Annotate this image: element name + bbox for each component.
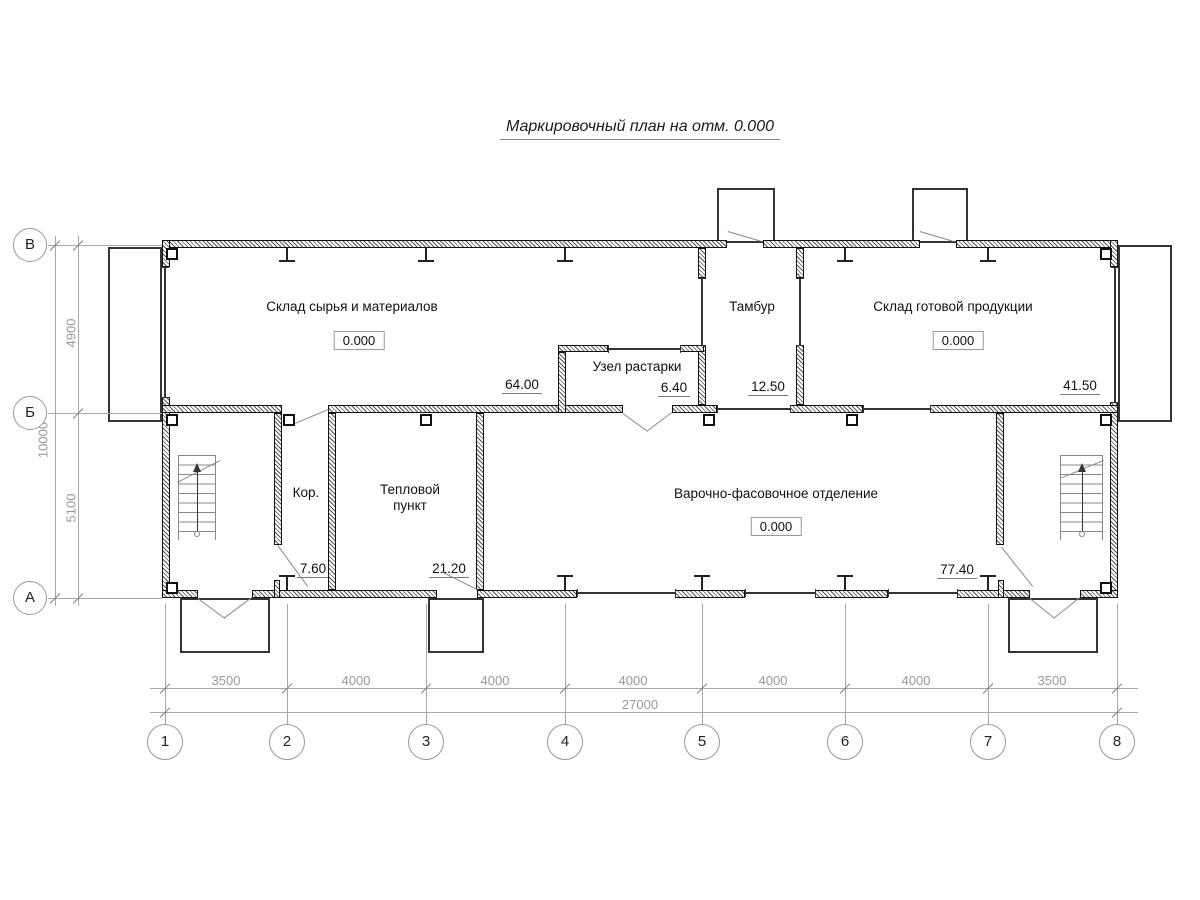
axis-circle-column: 6 <box>827 724 863 760</box>
stairs-start-marker <box>1079 531 1085 537</box>
elevation-badge-finished-goods: 0.000 <box>933 331 984 350</box>
window-tick <box>577 589 578 597</box>
wall-segment <box>274 580 280 598</box>
porch-bottom-2 <box>428 598 484 653</box>
room-label-raw-materials: Склад сырья и материалов <box>266 299 437 314</box>
window-tick <box>698 278 706 279</box>
axis-circle-column: 4 <box>547 724 583 760</box>
door-leaf-line <box>295 409 328 424</box>
wall-segment <box>162 240 727 248</box>
column-symbol <box>166 582 178 594</box>
column-symbol <box>987 577 989 590</box>
elevation-badge-raw-materials: 0.000 <box>334 331 385 350</box>
wall-segment <box>477 590 577 598</box>
dimension-label-span-1: 3500 <box>212 673 241 688</box>
axis-circle-column: 8 <box>1099 724 1135 760</box>
column-symbol <box>980 260 996 262</box>
column-symbol <box>1100 414 1112 426</box>
room-label-unpacking: Узел растарки <box>593 359 682 374</box>
area-label-unpacking: 6.40 <box>658 380 690 397</box>
column-symbol <box>701 577 703 590</box>
window-line <box>799 278 801 345</box>
extension-line <box>988 604 989 724</box>
window-tick <box>608 345 609 353</box>
stairs-up-arrow-icon <box>1078 463 1086 472</box>
window-line <box>717 408 790 410</box>
stairs-up-arrow-icon <box>193 463 201 472</box>
elevation-badge-cooking-packing: 0.000 <box>751 517 802 536</box>
wall-segment <box>680 345 704 352</box>
area-label-cooking-packing: 77.40 <box>937 562 977 579</box>
porch-top-2 <box>912 188 968 243</box>
column-symbol <box>166 248 178 260</box>
room-label-heating-unit: Тепловой пункт <box>367 482 453 513</box>
column-symbol <box>703 414 715 426</box>
wall-segment <box>698 345 706 405</box>
extension-line <box>426 604 427 724</box>
window-line <box>701 278 703 345</box>
window-tick <box>675 589 676 597</box>
window-tick <box>745 589 746 597</box>
window-tick <box>1111 402 1119 403</box>
wall-segment <box>815 590 888 598</box>
dimension-label-span-4: 4000 <box>619 673 648 688</box>
wall-segment <box>672 405 717 413</box>
dimension-label-total-width: 27000 <box>622 697 658 712</box>
column-symbol <box>694 575 710 577</box>
column-symbol <box>286 577 288 590</box>
window-tick <box>717 405 718 413</box>
window-line <box>888 592 957 594</box>
window-tick <box>698 345 706 346</box>
dimension-line-total-width <box>150 712 1138 713</box>
extension-line <box>565 604 566 724</box>
column-symbol <box>420 414 432 426</box>
stairs-start-marker <box>194 531 200 537</box>
porch-top-1 <box>717 188 775 243</box>
axis-circle-column: 2 <box>269 724 305 760</box>
extension-line <box>702 604 703 724</box>
column-symbol <box>980 575 996 577</box>
column-symbol <box>837 575 853 577</box>
window-tick <box>790 405 791 413</box>
window-tick <box>815 589 816 597</box>
dimension-label-span-6: 4000 <box>902 673 931 688</box>
dimension-label-row-span-1: 4900 <box>64 319 79 348</box>
wall-segment <box>790 405 863 413</box>
window-tick <box>863 405 864 413</box>
room-label-tambour: Тамбур <box>729 299 775 314</box>
wall-segment <box>1080 590 1118 598</box>
porch-bottom-3 <box>1008 598 1098 653</box>
wall-segment <box>998 580 1004 598</box>
window-tick <box>161 267 169 268</box>
window-tick <box>161 397 169 398</box>
dimension-label-span-2: 4000 <box>342 673 371 688</box>
window-line <box>608 348 680 350</box>
wall-segment <box>796 345 804 405</box>
column-symbol <box>279 260 295 262</box>
stairs-direction-line <box>197 470 198 531</box>
wall-segment <box>328 413 336 590</box>
axis-circle-column: 1 <box>147 724 183 760</box>
window-tick <box>796 345 804 346</box>
wall-segment <box>957 590 1030 598</box>
dimension-line-total-height <box>55 236 56 606</box>
axis-circle-column: 5 <box>684 724 720 760</box>
wall-segment <box>558 352 566 413</box>
door-leaf-line <box>647 412 672 431</box>
porch-bottom-1 <box>180 598 270 653</box>
area-label-tambour: 12.50 <box>748 379 788 396</box>
extension-line <box>1117 604 1118 724</box>
column-symbol <box>418 260 434 262</box>
axis-circle-row: Б <box>13 396 47 430</box>
dimension-label-row-span-2: 5100 <box>64 494 79 523</box>
column-symbol <box>837 260 853 262</box>
room-label-finished-goods: Склад готовой продукции <box>873 299 1032 314</box>
wall-segment <box>675 590 745 598</box>
wall-segment <box>162 397 170 598</box>
door-leaf-line <box>622 413 648 432</box>
wall-segment <box>996 413 1004 545</box>
area-label-finished-goods: 41.50 <box>1060 378 1100 395</box>
column-symbol <box>279 575 295 577</box>
extension-line <box>48 598 162 599</box>
window-line <box>863 408 930 410</box>
axis-circle-column: 7 <box>970 724 1006 760</box>
wall-segment <box>162 405 282 413</box>
area-label-raw-materials: 64.00 <box>502 377 542 394</box>
dimension-line-row-spans <box>78 236 79 606</box>
wall-segment <box>930 405 1118 413</box>
window-line <box>164 267 166 397</box>
wall-segment <box>698 248 706 278</box>
column-symbol <box>557 575 573 577</box>
extension-line <box>287 604 288 724</box>
wall-segment <box>476 413 484 590</box>
window-line <box>1114 267 1116 402</box>
room-label-corridor: Кор. <box>293 485 320 500</box>
plan-title: Маркировочный план на отм. 0.000 <box>500 118 780 140</box>
window-tick <box>1111 267 1119 268</box>
axis-circle-row: А <box>13 581 47 615</box>
window-line <box>577 592 675 594</box>
window-tick <box>957 589 958 597</box>
window-tick <box>930 405 931 413</box>
extension-line <box>845 604 846 724</box>
floor-plan: Маркировочный план на отм. 0.000 Склад с… <box>0 0 1200 900</box>
window-tick <box>796 278 804 279</box>
dimension-line-spans <box>150 688 1138 689</box>
window-tick <box>888 589 889 597</box>
wall-segment <box>1110 402 1118 598</box>
wall-segment <box>796 248 804 278</box>
extension-line <box>48 413 162 414</box>
column-symbol <box>564 577 566 590</box>
axis-circle-column: 3 <box>408 724 444 760</box>
loading-platform-left <box>108 247 162 422</box>
column-symbol <box>1100 582 1112 594</box>
stairs-direction-line <box>1082 470 1083 531</box>
wall-segment <box>558 345 608 352</box>
extension-line <box>48 245 162 246</box>
wall-segment <box>956 240 1118 248</box>
column-symbol <box>283 414 295 426</box>
dimension-label-span-5: 4000 <box>759 673 788 688</box>
column-symbol <box>1100 248 1112 260</box>
column-symbol <box>844 577 846 590</box>
column-symbol <box>846 414 858 426</box>
column-symbol <box>557 260 573 262</box>
column-symbol <box>166 414 178 426</box>
dimension-label-span-7: 3500 <box>1038 673 1067 688</box>
wall-segment <box>328 405 623 413</box>
window-tick <box>680 345 681 353</box>
wall-segment <box>274 413 282 545</box>
window-line <box>745 592 815 594</box>
room-label-cooking-packing: Варочно-фасовочное отделение <box>674 486 878 501</box>
area-label-corridor: 7.60 <box>297 561 329 578</box>
axis-circle-row: В <box>13 228 47 262</box>
extension-line <box>165 604 166 724</box>
loading-platform-right <box>1118 245 1172 422</box>
wall-segment <box>763 240 920 248</box>
dimension-label-span-3: 4000 <box>481 673 510 688</box>
door-leaf-line <box>1001 547 1033 587</box>
